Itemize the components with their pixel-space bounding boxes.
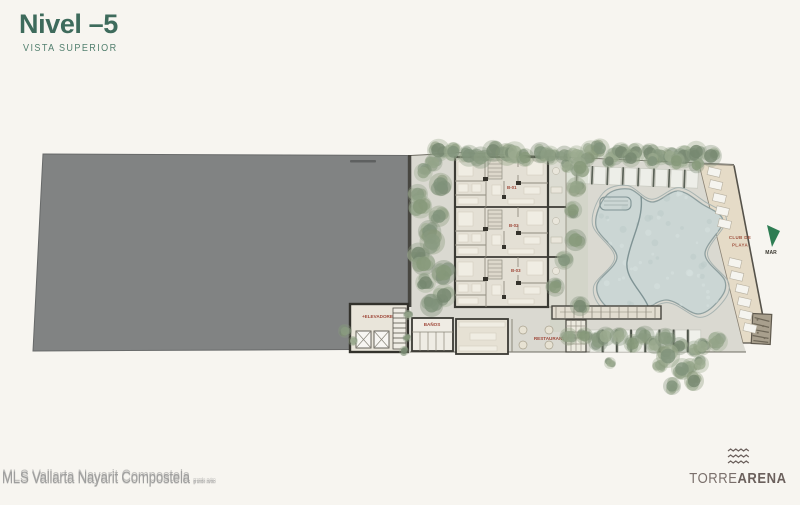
svg-text:B-01: B-01 — [507, 185, 517, 190]
svg-text:MAR: MAR — [765, 250, 777, 256]
svg-text:CLUB DE: CLUB DE — [729, 235, 751, 240]
svg-text:B-03: B-03 — [511, 268, 521, 273]
svg-text:BAÑOS: BAÑOS — [424, 321, 441, 327]
svg-text:B-02: B-02 — [509, 223, 519, 228]
svg-text:+ELEVADORES: +ELEVADORES — [362, 314, 396, 319]
svg-text:PLAYA: PLAYA — [732, 243, 749, 248]
